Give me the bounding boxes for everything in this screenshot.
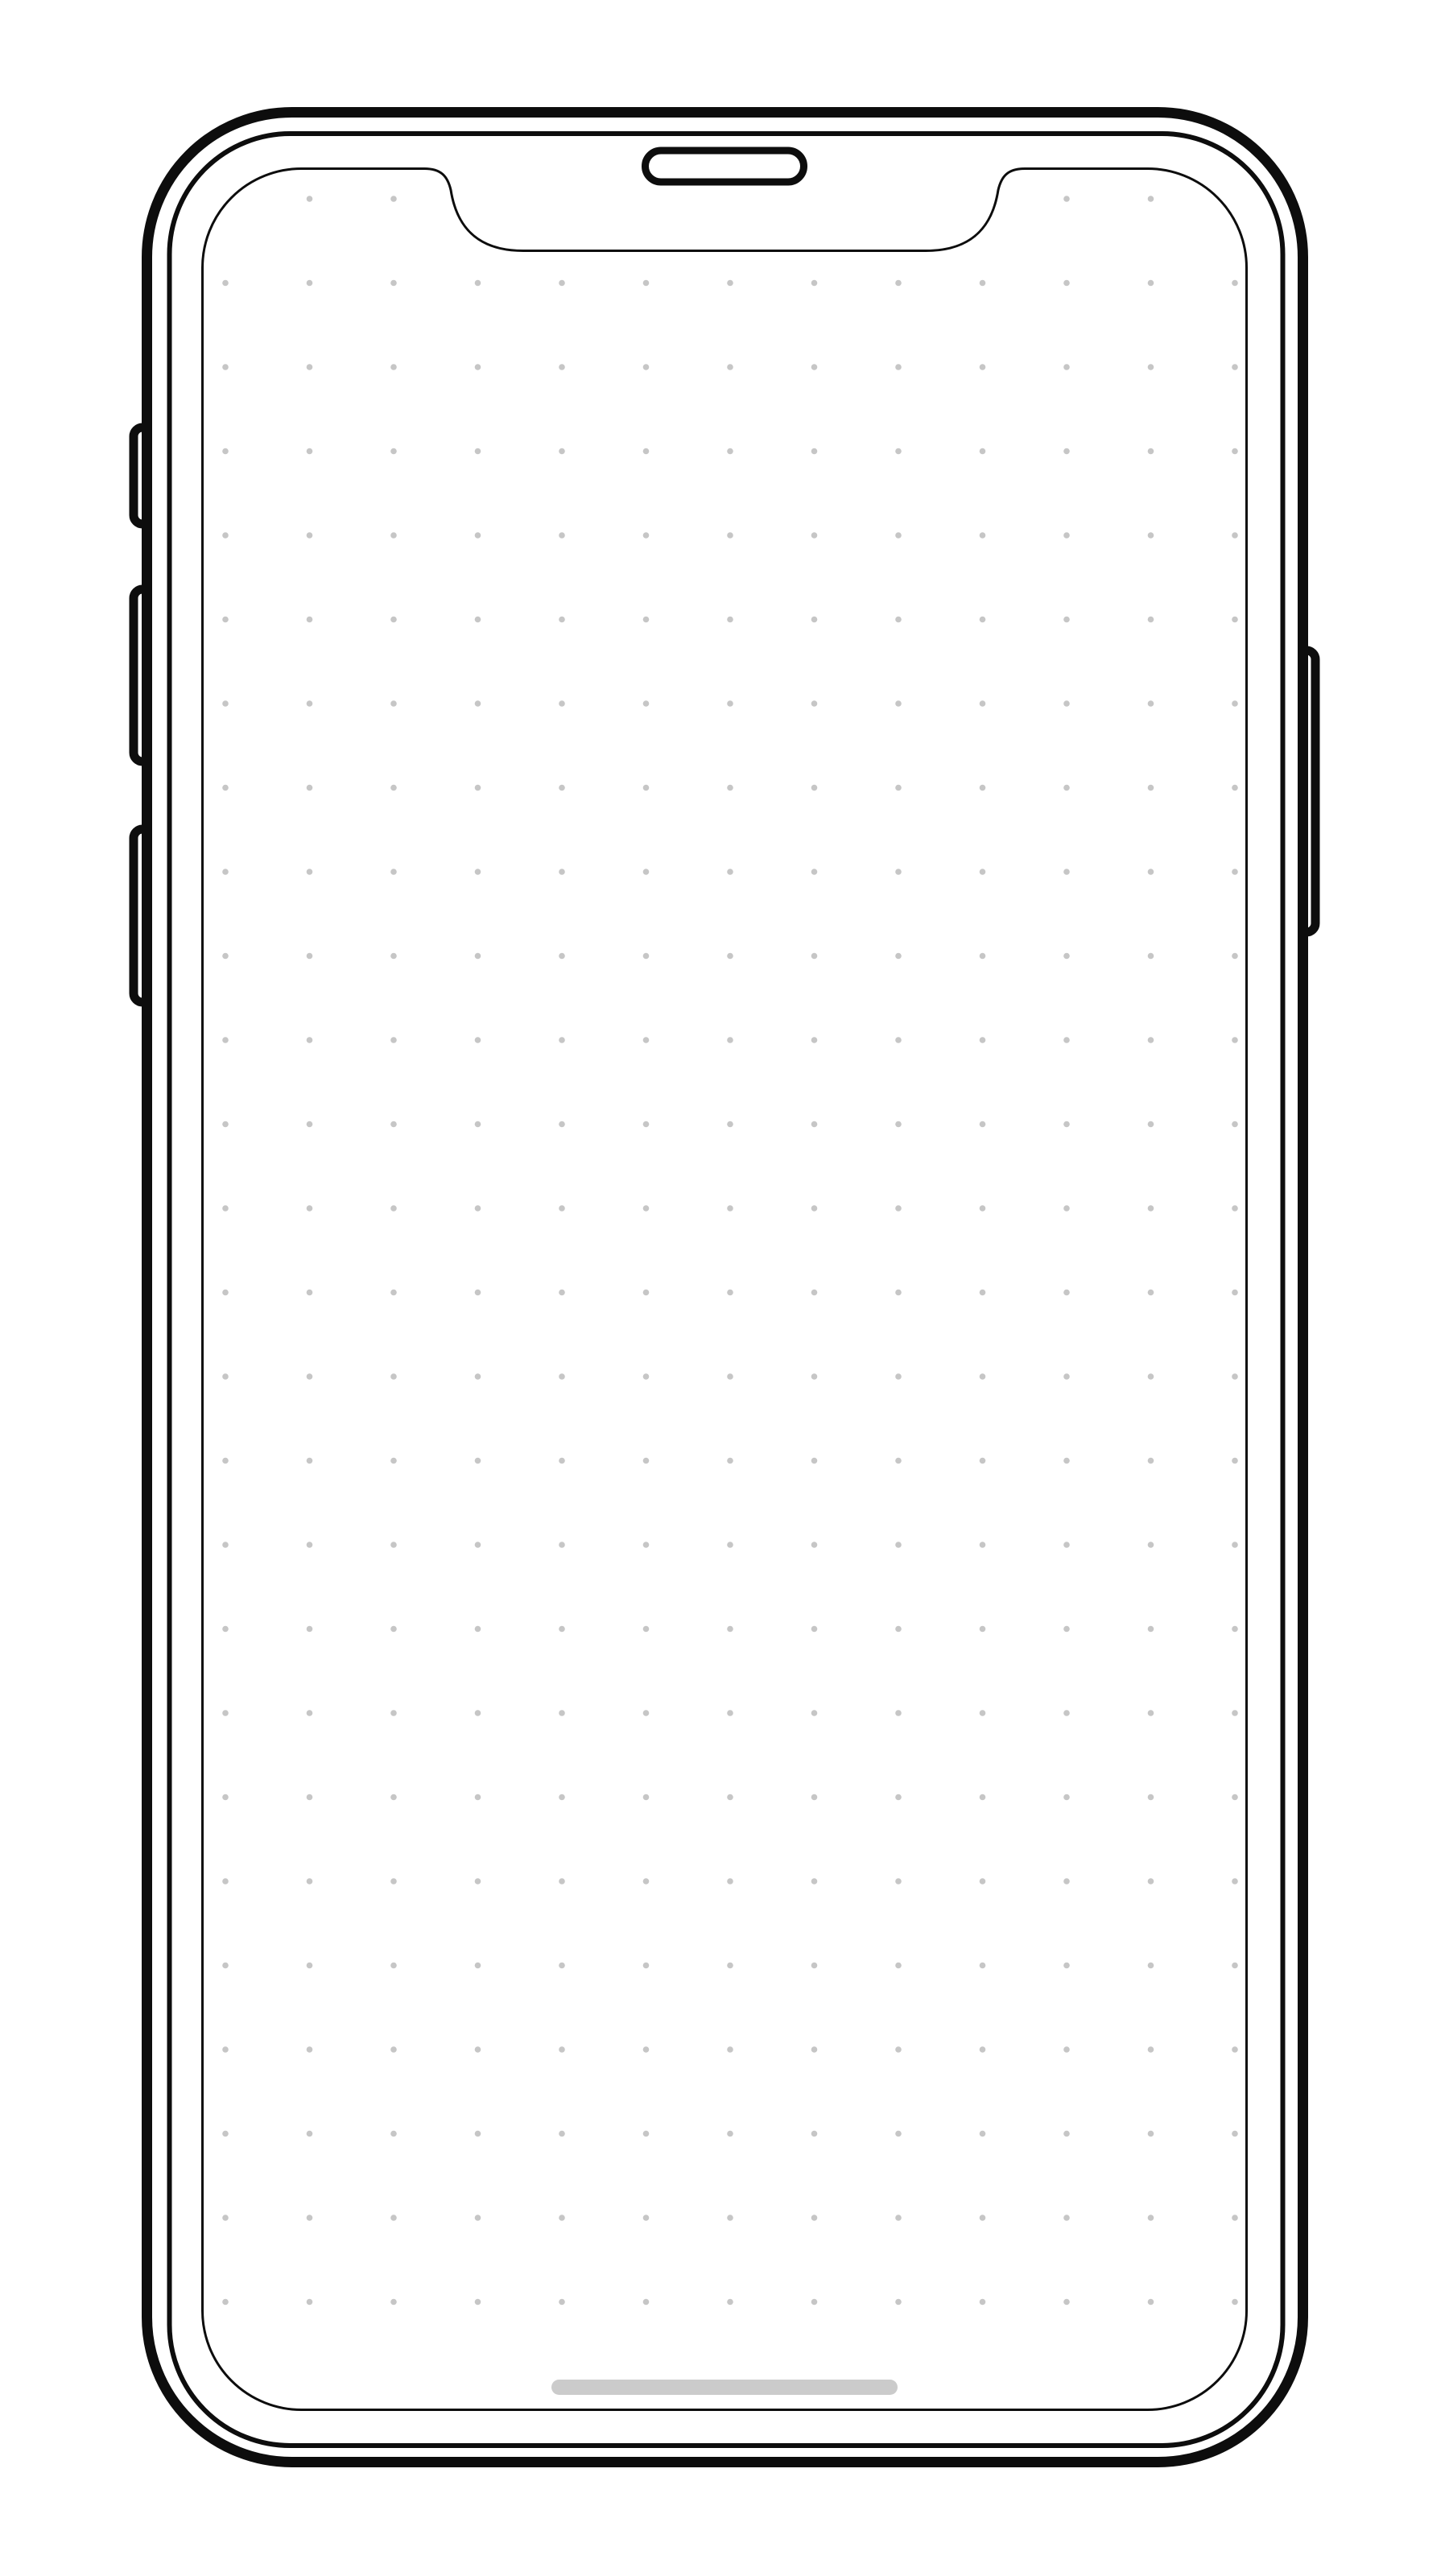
home-indicator[interactable]	[551, 2380, 898, 2395]
phone-mockup-canvas	[0, 0, 1449, 2576]
speaker-slot	[646, 151, 804, 182]
screen-surface[interactable]	[203, 169, 1247, 2410]
